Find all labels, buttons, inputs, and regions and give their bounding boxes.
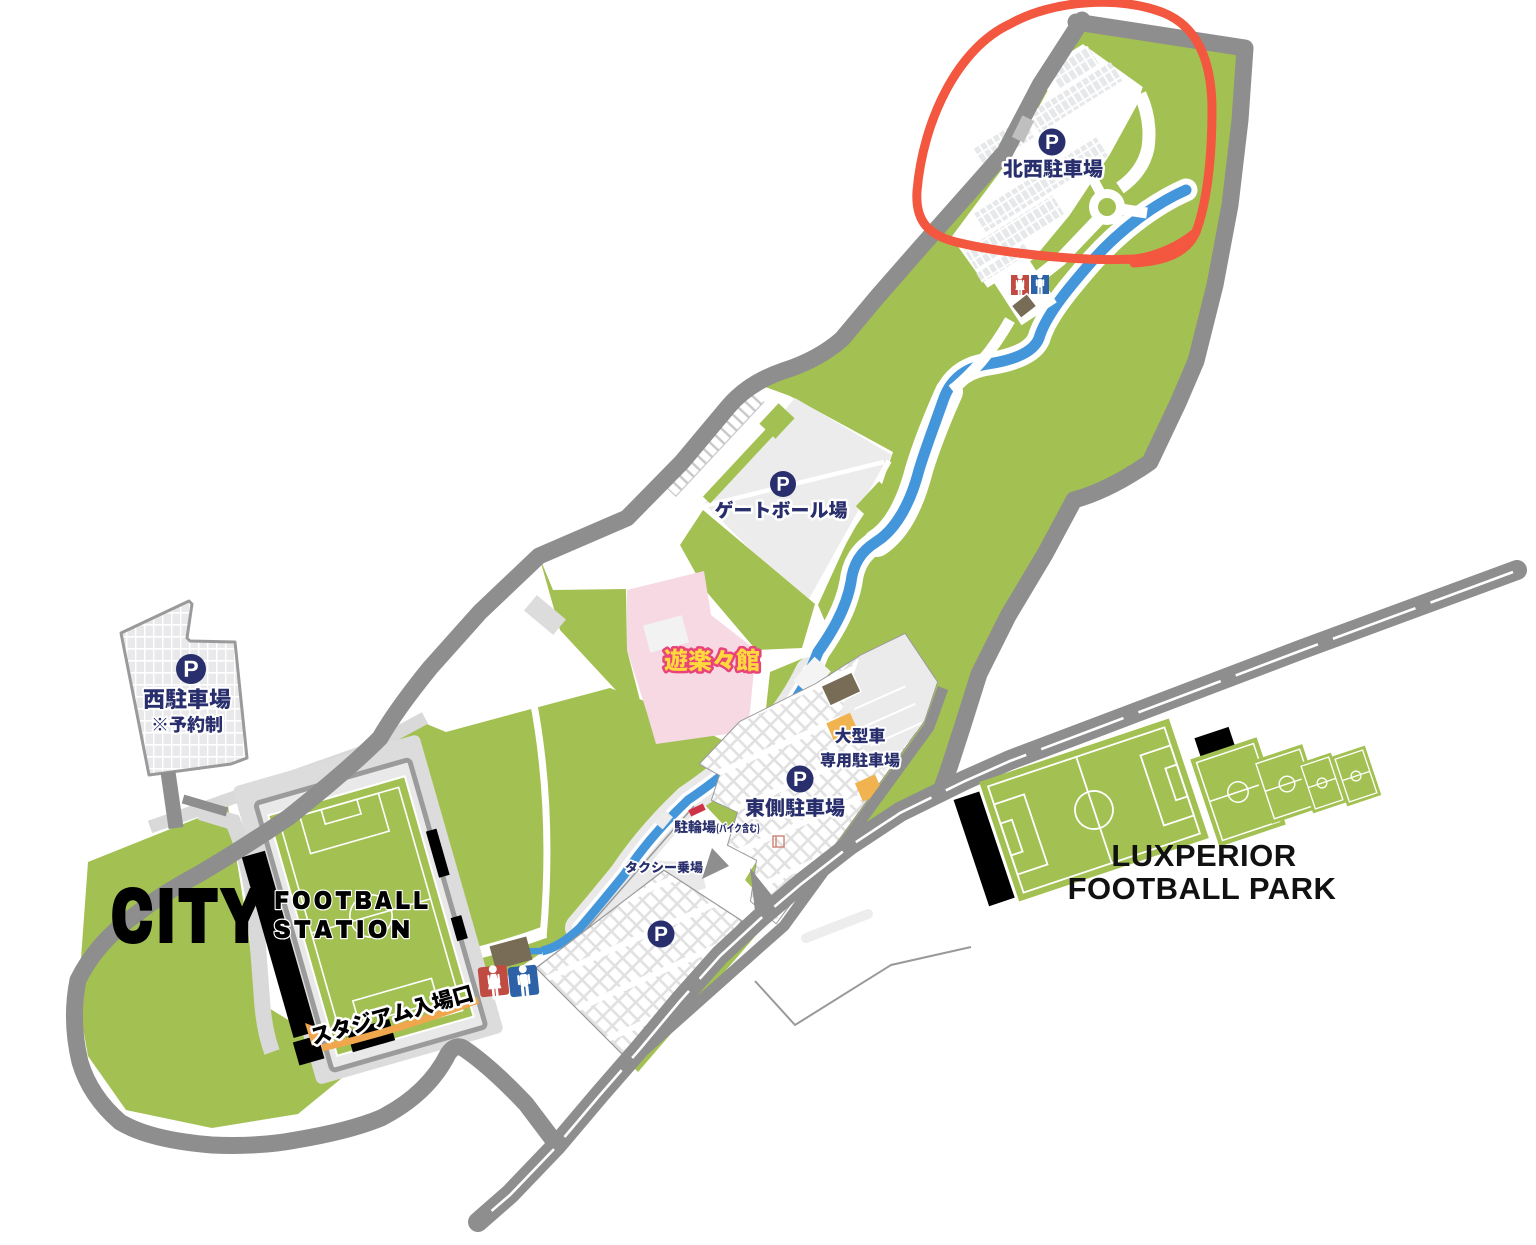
svg-text:LUXPERIOR: LUXPERIOR (1111, 838, 1296, 873)
svg-text:FOOTBALL PARK: FOOTBALL PARK (1068, 871, 1337, 906)
